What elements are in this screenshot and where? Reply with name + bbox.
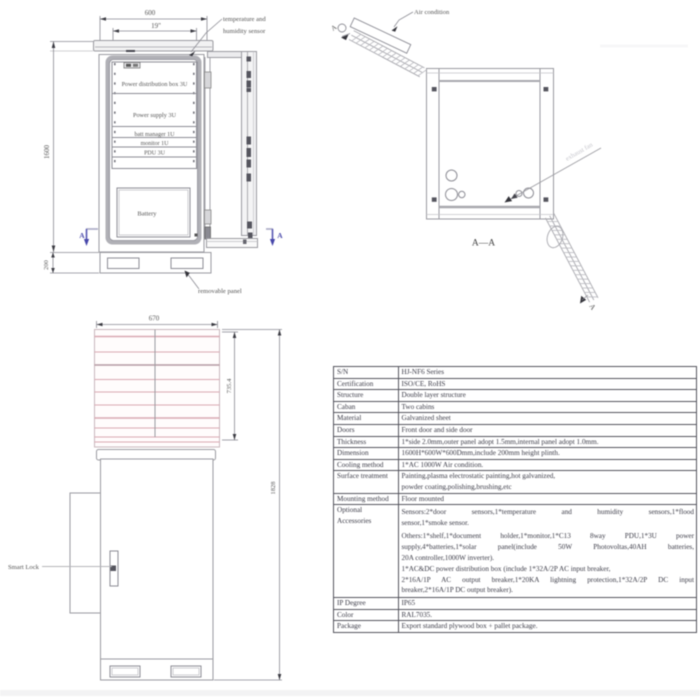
svg-text:Air condition: Air condition	[414, 9, 450, 16]
svg-text:Power distribution box 3U: Power distribution box 3U	[122, 81, 188, 88]
svg-text:batt manager 1U: batt manager 1U	[135, 132, 176, 138]
svg-text:exhaust fan: exhaust fan	[565, 141, 595, 163]
svg-text:monitor 1U: monitor 1U	[141, 141, 169, 147]
svg-text:A: A	[587, 302, 598, 312]
svg-text:200: 200	[43, 260, 50, 270]
svg-text:A—A: A—A	[472, 239, 495, 249]
svg-text:1828: 1828	[270, 481, 277, 495]
svg-text:735.4: 735.4	[226, 378, 233, 394]
svg-text:A: A	[79, 231, 85, 240]
svg-text:670: 670	[149, 315, 160, 323]
svg-text:19": 19"	[151, 22, 161, 30]
svg-text:Battery: Battery	[137, 211, 157, 218]
svg-text:humidity sensor: humidity sensor	[223, 28, 266, 35]
svg-text:A: A	[330, 23, 339, 32]
svg-text:1600: 1600	[43, 145, 51, 160]
svg-text:Smart Lock: Smart Lock	[8, 564, 40, 571]
svg-text:A: A	[277, 231, 283, 240]
svg-text:600: 600	[145, 9, 156, 17]
svg-text:PDU 3U: PDU 3U	[144, 151, 166, 157]
svg-text:removable panel: removable panel	[198, 288, 242, 295]
svg-text:Power supply 3U: Power supply 3U	[133, 112, 176, 119]
svg-text:temperature and: temperature and	[223, 16, 266, 23]
